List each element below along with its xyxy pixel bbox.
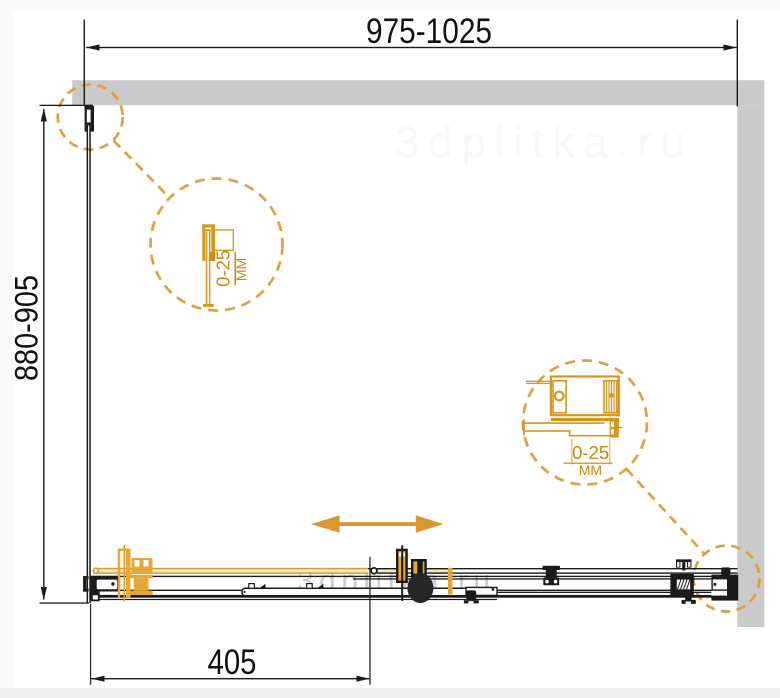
svg-text:ММ: ММ — [233, 258, 249, 281]
svg-text:3dplitka.ru: 3dplitka.ru — [395, 118, 685, 167]
svg-text:405: 405 — [208, 643, 257, 682]
svg-text:975-1025: 975-1025 — [366, 12, 492, 51]
svg-text:ММ: ММ — [579, 462, 602, 478]
svg-text:0-25: 0-25 — [572, 442, 609, 463]
svg-text:880-905: 880-905 — [9, 275, 45, 381]
svg-text:0-25: 0-25 — [212, 250, 233, 287]
